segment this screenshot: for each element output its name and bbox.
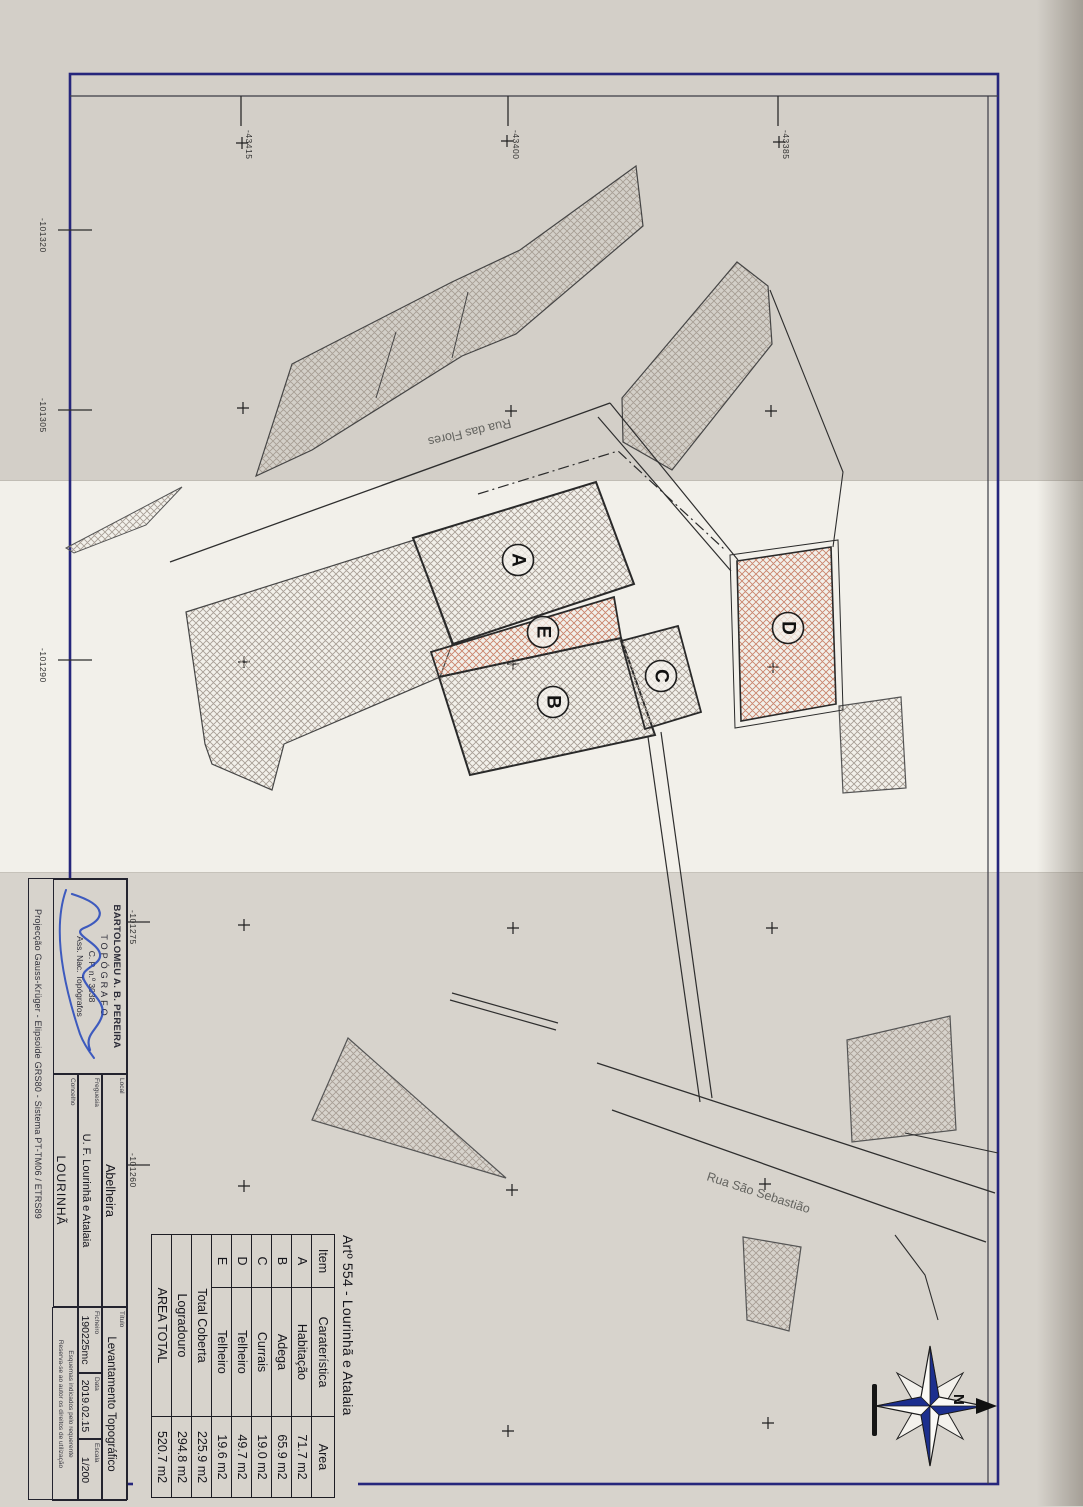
svg-text:D: D: [778, 621, 799, 635]
total-label: Logradouro: [172, 1235, 192, 1417]
svg-text:E: E: [533, 626, 554, 639]
field-titulo: Título Levantamento Topográfico: [102, 1307, 127, 1501]
table-row: E Telheiro 19.6 m2: [212, 1235, 232, 1498]
areas-table: Item Caraterística Area A Habitação 71.7…: [151, 1234, 335, 1498]
field-freguesia-label: Freguesia: [93, 1078, 100, 1107]
scanned-survey-page: { "map": { "coord_labels_top": ["-43415"…: [0, 0, 1083, 1506]
parcel-label-e: E: [528, 617, 559, 648]
field-local-value: Abelheira: [103, 1075, 117, 1306]
cell-caracteristica: Habitação: [292, 1288, 312, 1417]
svg-text:A: A: [508, 553, 529, 567]
col-header-item: Item: [312, 1235, 335, 1288]
north-label: N: [950, 1394, 967, 1405]
cell-caracteristica: Telheiro: [212, 1288, 232, 1417]
narrow-corridor: [648, 732, 712, 1102]
signature: [56, 884, 118, 1070]
table-total-row: AREA TOTAL 520.7 m2: [152, 1235, 172, 1498]
table-row: D Telheiro 49.7 m2: [232, 1235, 252, 1498]
compass-bar: [872, 1384, 877, 1436]
field-freguesia-value: U. F. Lourinhã e Atalaia: [80, 1075, 92, 1306]
field-escala-value: 1/200: [79, 1440, 91, 1500]
total-value: 294.8 m2: [172, 1417, 192, 1498]
surveyor-stamp: BARTOLOMEU A. B. PEREIRA TOPÓGRAFO C. P.…: [53, 879, 127, 1074]
misc-boundary-lines: [770, 290, 998, 1320]
compass-rose: N: [872, 1346, 997, 1466]
svg-text:B: B: [543, 695, 564, 709]
field-ficheiro-label: Ficheiro: [93, 1311, 100, 1334]
field-data-label: Data: [93, 1377, 100, 1391]
wall-segment: [450, 993, 558, 1030]
table-row: B Adega 65.9 m2: [272, 1235, 292, 1498]
note-line-2: Reserva-se ao autor os direitos de utili…: [56, 1308, 66, 1500]
hatched-area-northeast: [622, 262, 772, 470]
cell-area: 49.7 m2: [232, 1417, 252, 1498]
table-header-row: Item Caraterística Area: [312, 1235, 335, 1498]
col-header-caracteristica: Caraterística: [312, 1288, 335, 1417]
parcel-label-c: C: [646, 661, 677, 692]
cell-caracteristica: Adega: [272, 1288, 292, 1417]
field-freguesia: Freguesia U. F. Lourinhã e Atalaia: [78, 1074, 102, 1307]
field-concelho-value: LOURINHÃ: [54, 1075, 68, 1306]
table-row: C Currais 19.0 m2: [252, 1235, 272, 1498]
cell-area: 19.6 m2: [212, 1417, 232, 1498]
total-value: 520.7 m2: [152, 1417, 172, 1498]
scan-edge-shadow: [1037, 0, 1083, 1506]
projection-note: Projecção Gauss-Krüger - Elipsoide GRS80…: [29, 909, 43, 1489]
parcel-label-d: D: [773, 613, 804, 644]
cell-area: 19.0 m2: [252, 1417, 272, 1498]
hatched-area-bottom-right: [847, 1016, 956, 1142]
cell-item: C: [252, 1235, 272, 1288]
hatched-area-north: [256, 166, 643, 476]
field-data: Data 2019.02.15: [78, 1373, 102, 1439]
field-titulo-label: Título: [118, 1311, 125, 1327]
coord-label-top-1: -43415: [244, 130, 254, 159]
coord-label-left-3: -101290: [38, 648, 48, 683]
hatched-area-southeast-of-d: [839, 697, 906, 793]
table-total-row: Logradouro 294.8 m2: [172, 1235, 192, 1498]
cell-item: B: [272, 1235, 292, 1288]
coord-label-top-3: -43385: [781, 130, 791, 159]
field-data-value: 2019.02.15: [79, 1374, 91, 1438]
field-local: Local Abelheira: [102, 1074, 127, 1307]
hatched-area-road-corner: [743, 1237, 801, 1331]
street-name-rua-sao-sebastiao: Rua São Sebastião: [705, 1170, 812, 1217]
note-line-1: Esquemas indicados pelo requerente: [65, 1308, 75, 1500]
cell-caracteristica: Telheiro: [232, 1288, 252, 1417]
parcel-label-b: B: [538, 687, 569, 718]
table-total-row: Total Coberta 225.9 m2: [192, 1235, 212, 1498]
field-titulo-value: Levantamento Topográfico: [105, 1308, 117, 1500]
areas-table-block: Artº 554 - Lourinhã e Atalaia Item Carat…: [133, 1232, 358, 1502]
coord-label-left-4: -101275: [128, 910, 138, 945]
cell-area: 71.7 m2: [292, 1417, 312, 1498]
total-label: AREA TOTAL: [152, 1235, 172, 1417]
hatched-area-west: [186, 540, 452, 790]
total-label: Total Coberta: [192, 1235, 212, 1417]
hatched-sliver-west: [66, 487, 182, 553]
cell-item: E: [212, 1235, 232, 1288]
cell-caracteristica: Currais: [252, 1288, 272, 1417]
field-ficheiro: Ficheiro 190225mc: [78, 1307, 102, 1373]
cell-item: A: [292, 1235, 312, 1288]
col-header-area: Area: [312, 1417, 335, 1498]
field-ficheiro-value: 190225mc: [79, 1308, 91, 1372]
field-concelho-label: Concelho: [69, 1078, 76, 1105]
compass-blue-halves: [876, 1346, 984, 1466]
coord-label-left-1: -101320: [38, 218, 48, 253]
svg-text:C: C: [651, 669, 672, 683]
table-row: A Habitação 71.7 m2: [292, 1235, 312, 1498]
field-local-label: Local: [118, 1078, 125, 1094]
top-grid-ticks: [241, 96, 778, 126]
field-concelho: Concelho LOURINHÃ: [53, 1074, 78, 1307]
coord-label-left-2: -101305: [38, 398, 48, 433]
table-title: Artº 554 - Lourinhã e Atalaia: [340, 1235, 356, 1502]
street-name-rua-das-flores: Rua das Flores: [427, 416, 513, 449]
coord-label-top-2: -43400: [511, 130, 521, 159]
coord-label-left-5: -101260: [128, 1153, 138, 1188]
field-escala: Escala 1/200: [78, 1439, 102, 1501]
title-block-notes: Esquemas indicados pelo requerente Reser…: [52, 1307, 78, 1501]
total-value: 225.9 m2: [192, 1417, 212, 1498]
cell-item: D: [232, 1235, 252, 1288]
cell-area: 65.9 m2: [272, 1417, 292, 1498]
hatched-triangle-bottom-left: [312, 1038, 506, 1178]
field-escala-label: Escala: [93, 1443, 100, 1463]
compass-north-arrowhead: [976, 1398, 997, 1414]
parcel-label-a: A: [503, 545, 534, 576]
title-block: BARTOLOMEU A. B. PEREIRA TOPÓGRAFO C. P.…: [28, 878, 128, 1500]
